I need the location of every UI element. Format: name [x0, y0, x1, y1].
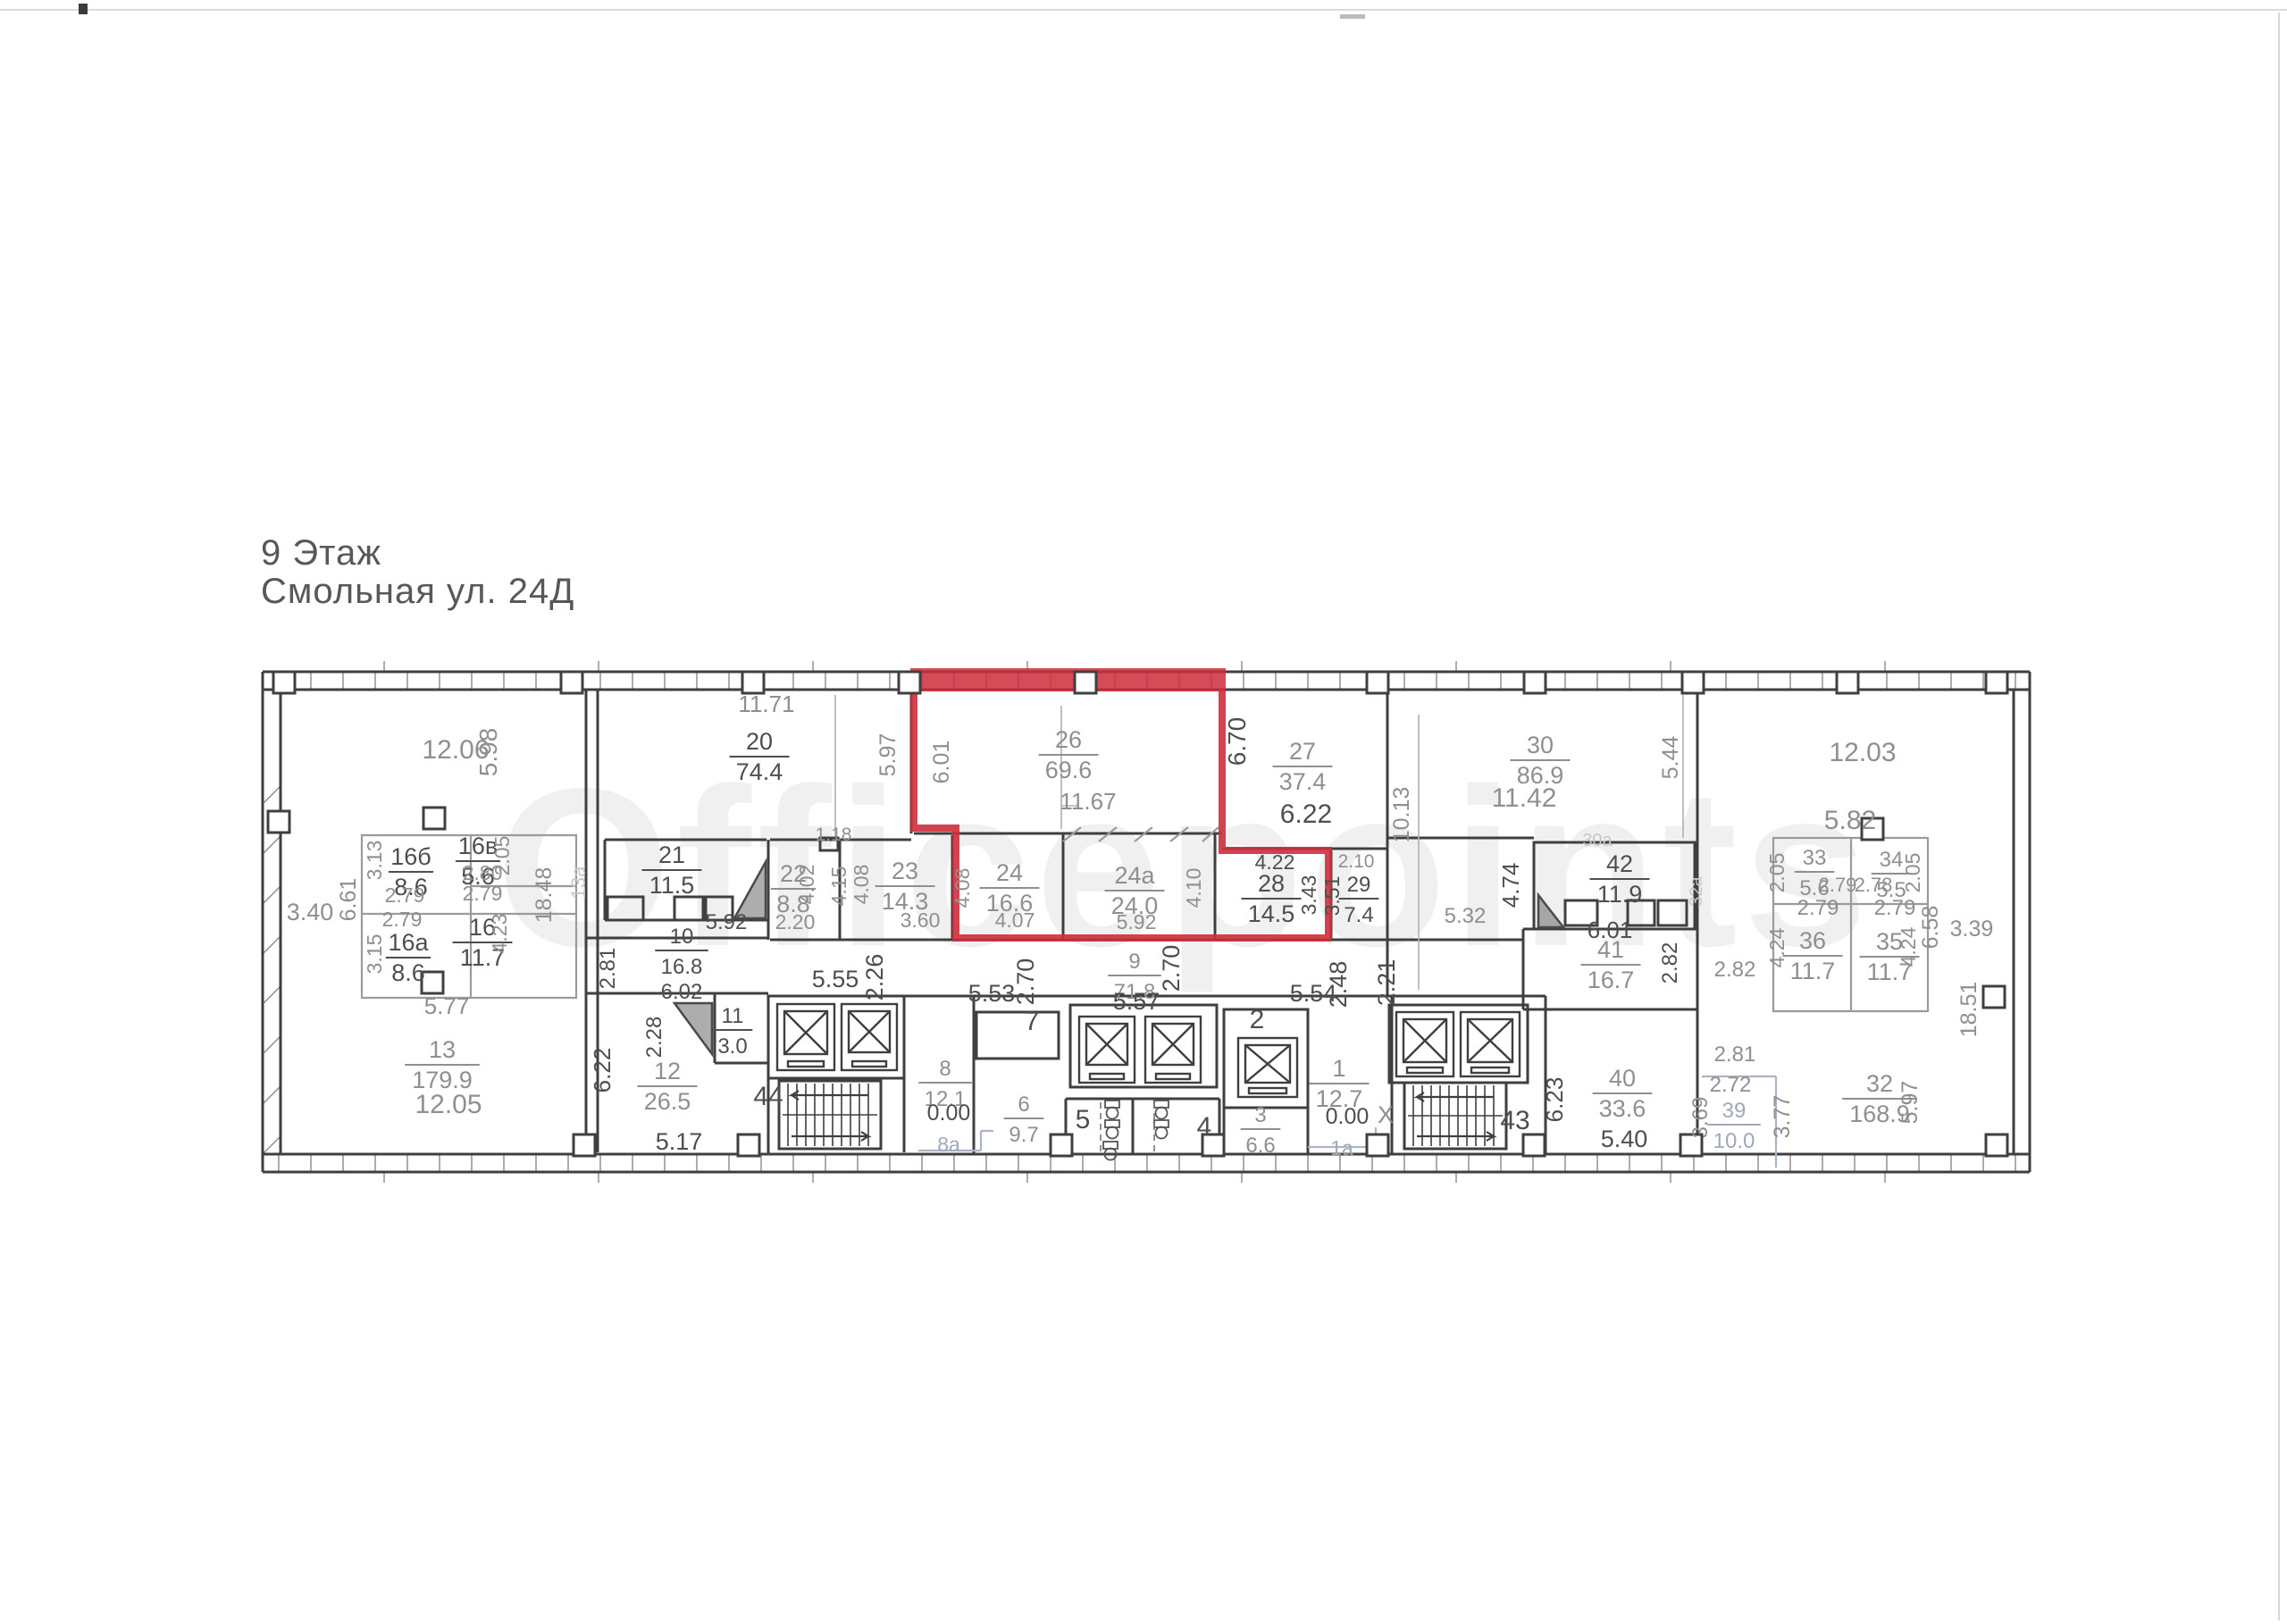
dim-label: 2.05 — [1901, 853, 1924, 893]
dim-label: 2.82 — [1714, 958, 1756, 982]
toilet-icon — [1105, 1101, 1119, 1119]
room-label: 113.0 — [713, 1004, 753, 1059]
column-icon — [899, 672, 920, 693]
dim-label: 2.82 — [1658, 942, 1682, 984]
dim-label: 2.79 — [1874, 896, 1916, 920]
dim-label: 4 — [1197, 1112, 1212, 1142]
column-icon — [1986, 672, 2007, 693]
dim-label: 11.71 — [738, 691, 794, 717]
room-number: 23 — [892, 858, 918, 884]
dim-label: 5.77 — [424, 992, 470, 1019]
dim-label: 13а — [567, 866, 590, 899]
dim-label: 1.18 — [816, 825, 852, 845]
room-area: 11.7 — [1790, 958, 1836, 984]
dim-label: 5.17 — [656, 1128, 703, 1155]
dim-label: 2.70 — [1012, 958, 1039, 1006]
dim-label: 2.70 — [1158, 945, 1185, 992]
dim-label: 5.97 — [875, 733, 901, 777]
dim-label: 4.07 — [995, 908, 1035, 932]
dim-label: 5.97 — [1897, 1081, 1923, 1125]
dim-label: 10.13 — [1389, 787, 1414, 843]
dim-label: 3.69 — [1688, 1097, 1713, 1139]
dim-label: 1а — [1330, 1136, 1353, 1159]
room-number: 33 — [1803, 846, 1827, 870]
dim-label: 4.08 — [951, 868, 974, 908]
column-icon — [1367, 1134, 1388, 1156]
room-number: 24а — [1114, 862, 1155, 889]
room-label: 3086.9 — [1511, 732, 1571, 789]
column-icon — [1367, 672, 1388, 693]
dim-label: 2.72 — [1710, 1073, 1752, 1097]
dim-label: 6.61 — [336, 878, 361, 922]
dim-label: 2.48 — [1325, 961, 1352, 1009]
room-area: 33.6 — [1599, 1095, 1646, 1122]
dim-label: 3.77 — [1770, 1095, 1795, 1139]
room-number: 16а — [388, 929, 429, 956]
dim-label: 2.79 — [1819, 874, 1857, 896]
dim-label: 4.15 — [827, 866, 850, 907]
dim-label: 12.05 — [415, 1090, 482, 1119]
dim-label: 2.79 — [1797, 896, 1839, 920]
room-area: 10.0 — [1713, 1129, 1755, 1153]
room-number: 27 — [1289, 738, 1316, 765]
column-icon — [273, 672, 295, 693]
room-label: 3910.0 — [1707, 1099, 1761, 1153]
room-area: 74.4 — [736, 758, 783, 785]
column-icon — [268, 811, 289, 833]
column-icon — [574, 1134, 595, 1156]
dim-label: 4.02 — [795, 865, 818, 905]
elevator-icon — [1238, 1038, 1297, 1097]
dim-label: 11.67 — [1060, 788, 1116, 815]
room-number: 1 — [1332, 1055, 1345, 1082]
dim-label: 2.79 — [382, 908, 423, 931]
room-number: 8 — [939, 1057, 951, 1081]
room-number: 30 — [1527, 732, 1554, 758]
room-area: 8.6 — [391, 959, 425, 986]
room-area: 9.7 — [1009, 1123, 1038, 1147]
dim-label: 6.22 — [1280, 799, 1332, 829]
dim-label: 11.42 — [1492, 783, 1557, 813]
room-label: 16а8.6 — [386, 929, 431, 986]
room-number: 28 — [1258, 870, 1285, 897]
room-label: 36.6 — [1241, 1103, 1281, 1158]
toilet-fixtures — [1101, 1101, 1169, 1160]
dim-label: 5.40 — [1601, 1126, 1648, 1152]
dim-label: 4.08 — [850, 865, 873, 905]
room-number: 16б — [390, 843, 431, 870]
column-icon — [738, 1134, 759, 1156]
room-area: 6.6 — [1245, 1134, 1275, 1158]
room-number: 34 — [1880, 848, 1904, 872]
column-icon — [1986, 1134, 2007, 1156]
room-area: 7.4 — [1344, 903, 1373, 927]
room-number: 40 — [1609, 1065, 1636, 1092]
dim-label: 6.01 — [1587, 917, 1633, 943]
dim-label: 2.10 — [1338, 851, 1375, 872]
toilet-icon — [1154, 1120, 1169, 1139]
dim-label: 4.24 — [1897, 926, 1920, 967]
column-icon — [1523, 1134, 1545, 1156]
scanned-floor-plan-page: 9 Этаж Смольная ул. 24Д Officepoints — [0, 0, 2287, 1624]
elevator-icon — [1396, 1012, 1453, 1076]
room-label: 69.7 — [1004, 1092, 1044, 1147]
dim-label: 5.92 — [1117, 910, 1157, 933]
dim-label: 3.13 — [363, 841, 386, 881]
dim-label: 3.60 — [901, 908, 941, 932]
stair-symbols — [779, 1081, 1506, 1149]
dim-label: 3.15 — [363, 934, 386, 975]
column-icon — [1524, 672, 1546, 693]
dim-label: 2.81 — [1714, 1042, 1756, 1067]
dim-label: 5.53 — [968, 980, 1016, 1007]
dim-label: 44 — [753, 1082, 783, 1111]
dim-label: 5.82 — [1824, 806, 1876, 835]
room-number: 29 — [1347, 873, 1371, 897]
dim-label: 2.78 — [1855, 874, 1893, 896]
room-area: 16.8 — [661, 955, 703, 979]
column-icon — [423, 808, 445, 829]
dim-label: 2.28 — [642, 1017, 666, 1059]
dim-label: 2.79 — [385, 883, 425, 907]
dim-label: 5.32 — [1445, 904, 1487, 928]
room-number: 12 — [654, 1058, 681, 1084]
dim-label: 2.05 — [1765, 853, 1789, 893]
room-number: 32 — [1866, 1070, 1893, 1097]
elevator-icon — [1461, 1012, 1520, 1076]
column-icon — [561, 672, 582, 693]
column-icon — [1075, 672, 1096, 693]
dim-label: 5.92 — [706, 910, 748, 934]
room-number: 20 — [746, 728, 773, 755]
dim-label: 6.58 — [1918, 906, 1943, 950]
dim-label: 6.01 — [929, 741, 954, 784]
toilet-icon — [1103, 1142, 1118, 1160]
dim-label: 6.23 — [1541, 1077, 1568, 1123]
dim-label: 3.40 — [287, 899, 334, 925]
room-elevation: 6.02 — [661, 980, 703, 1004]
dim-label: 8а — [937, 1133, 960, 1156]
room-area: 11.5 — [649, 872, 695, 899]
room-area: 16.7 — [1587, 967, 1635, 993]
dim-label: 2.21 — [1373, 959, 1400, 1007]
dim-label: 18.51 — [1956, 982, 1981, 1038]
toilet-icon — [1154, 1101, 1169, 1119]
stairs-icon — [779, 1081, 881, 1149]
dim-label: 5.57 — [1113, 988, 1160, 1015]
dim-label: 0.00 — [927, 1101, 971, 1126]
room-number: 3 — [1254, 1103, 1266, 1127]
room-number: 36 — [1799, 927, 1826, 954]
room-area: 69.6 — [1045, 757, 1093, 783]
dim-label: 3.39 — [1950, 917, 1994, 942]
room-label: 1226.5 — [638, 1058, 698, 1115]
dim-label: 0.00 — [1326, 1104, 1370, 1129]
dim-label: 5.44 — [1658, 736, 1683, 780]
dim-label: 2.81 — [596, 948, 620, 990]
elevator-icon — [1079, 1017, 1135, 1083]
dim-label: 12.03 — [1829, 738, 1896, 767]
dim-label: 4.10 — [1182, 868, 1205, 908]
dim-label: Х — [1378, 1101, 1394, 1128]
column-icon — [1051, 1134, 1072, 1156]
dim-label: 3.43 — [1297, 875, 1320, 916]
room-area: 37.4 — [1279, 768, 1327, 795]
dim-label: 4.24 — [1765, 927, 1789, 967]
room-number: 11 — [722, 1004, 744, 1028]
room-area: 11.9 — [1597, 881, 1643, 908]
dim-label: 7 — [1025, 1007, 1040, 1036]
room-number: 24 — [996, 859, 1023, 886]
dim-label: 6.22 — [589, 1048, 616, 1093]
room-number: 42 — [1606, 850, 1633, 877]
dim-label: 6.70 — [1223, 717, 1251, 766]
dim-label: 5.98 — [474, 728, 502, 777]
dim-label: 5.55 — [812, 966, 859, 992]
dim-label: 2 — [1250, 1005, 1265, 1034]
dim-label: 30а — [1582, 831, 1613, 850]
room-label: 13179.9 — [405, 1036, 480, 1093]
room-number: 39 — [1722, 1099, 1747, 1123]
room-number: 26 — [1055, 726, 1082, 753]
dim-label: 3.51 — [1320, 876, 1344, 917]
room-number: 10 — [670, 925, 694, 949]
column-icon — [1837, 672, 1858, 693]
elevator-icon — [777, 1004, 834, 1070]
elevator-icon — [1145, 1017, 1201, 1083]
dim-label: 43 — [1500, 1106, 1529, 1135]
dim-label: 2.20 — [775, 910, 816, 933]
room-number: 6 — [1018, 1092, 1029, 1117]
room-number: 21 — [658, 841, 685, 868]
dim-label: 4.74 — [1497, 863, 1524, 908]
dim-label: 5 — [1076, 1105, 1091, 1134]
dim-label: 32а — [1687, 875, 1706, 906]
toilet-icon — [1105, 1120, 1119, 1139]
dim-label: 4.22 — [1255, 850, 1295, 874]
room-area: 26.5 — [644, 1088, 691, 1115]
dim-label: 4.23 — [488, 914, 511, 954]
room-number: 9 — [1128, 950, 1140, 974]
room-number: 13 — [429, 1036, 456, 1063]
floor-plan-svg: Officepoints — [0, 0, 2287, 1624]
room-label: 2669.6 — [1039, 726, 1099, 783]
column-icon — [1983, 986, 2005, 1008]
dim-label: 2.79 — [463, 882, 503, 905]
stairs-icon — [1404, 1083, 1506, 1149]
column-icon — [1682, 672, 1704, 693]
room-area: 3.0 — [717, 1034, 747, 1059]
elevator-icon — [842, 1004, 897, 1070]
dim-label: 18.48 — [532, 867, 557, 924]
room-area: 14.5 — [1248, 900, 1295, 927]
dim-label: 2.26 — [861, 954, 888, 1001]
room-label: 4033.6 — [1593, 1065, 1653, 1122]
room-label: 2074.4 — [730, 728, 790, 785]
